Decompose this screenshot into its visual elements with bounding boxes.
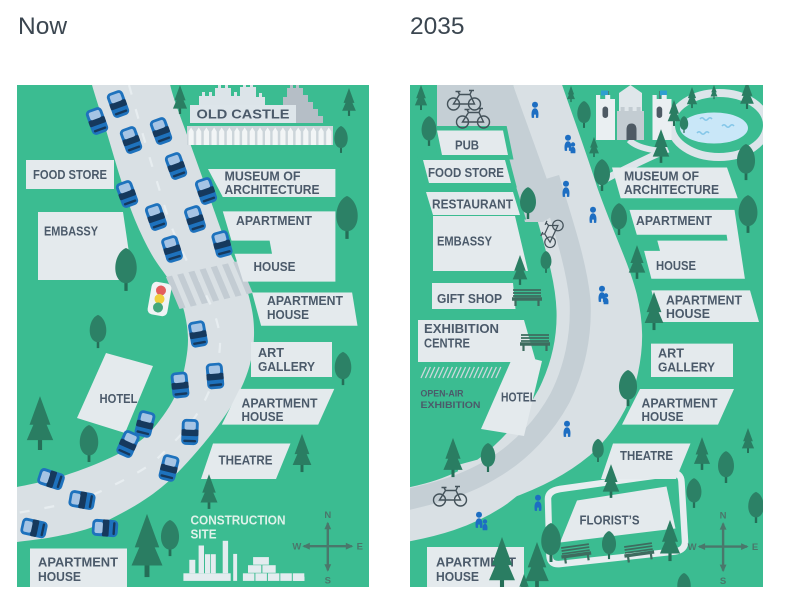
- svg-text:APARTMENT: APARTMENT: [636, 214, 712, 228]
- svg-text:CENTRE: CENTRE: [424, 337, 470, 351]
- svg-text:APARTMENT: APARTMENT: [666, 294, 742, 308]
- svg-text:FLORIST’S: FLORIST’S: [580, 514, 640, 528]
- svg-text:EMBASSY: EMBASSY: [437, 235, 493, 249]
- svg-text:THEATRE: THEATRE: [620, 449, 673, 463]
- svg-text:RESTAURANT: RESTAURANT: [432, 198, 513, 212]
- svg-text:APARTMENT: APARTMENT: [236, 214, 312, 228]
- svg-text:HOUSE: HOUSE: [656, 259, 696, 273]
- svg-text:EXHIBITION: EXHIBITION: [424, 322, 499, 336]
- svg-text:HOUSE: HOUSE: [38, 570, 81, 584]
- svg-text:FOOD STORE: FOOD STORE: [33, 168, 107, 182]
- svg-text:GALLERY: GALLERY: [258, 360, 316, 374]
- svg-text:HOUSE: HOUSE: [666, 307, 710, 321]
- svg-text:MUSEUM OF: MUSEUM OF: [624, 170, 699, 184]
- svg-text:EXHIBITION: EXHIBITION: [421, 400, 481, 411]
- svg-text:ARCHITECTURE: ARCHITECTURE: [225, 183, 320, 197]
- svg-text:GIFT SHOP: GIFT SHOP: [437, 292, 502, 306]
- svg-text:ART: ART: [658, 347, 684, 361]
- svg-text:HOUSE: HOUSE: [642, 410, 684, 424]
- svg-text:FOOD STORE: FOOD STORE: [428, 166, 504, 180]
- svg-text:CONSTRUCTION: CONSTRUCTION: [191, 514, 286, 528]
- svg-text:APARTMENT: APARTMENT: [642, 397, 718, 411]
- svg-text:APARTMENT: APARTMENT: [267, 294, 343, 308]
- svg-text:HOUSE: HOUSE: [254, 260, 296, 274]
- svg-text:EMBASSY: EMBASSY: [44, 225, 99, 239]
- svg-text:PUB: PUB: [455, 139, 479, 153]
- svg-text:HOUSE: HOUSE: [242, 410, 284, 424]
- svg-text:HOUSE: HOUSE: [267, 308, 309, 322]
- svg-text:THEATRE: THEATRE: [219, 454, 273, 468]
- svg-text:MUSEUM OF: MUSEUM OF: [225, 170, 301, 184]
- svg-text:GALLERY: GALLERY: [658, 361, 716, 375]
- svg-text:APARTMENT: APARTMENT: [38, 556, 118, 570]
- svg-text:APARTMENT: APARTMENT: [242, 397, 318, 411]
- svg-text:ART: ART: [258, 346, 284, 360]
- svg-text:HOTEL: HOTEL: [501, 391, 536, 405]
- svg-text:HOTEL: HOTEL: [100, 392, 138, 406]
- svg-text:ARCHITECTURE: ARCHITECTURE: [624, 183, 719, 197]
- svg-text:HOUSE: HOUSE: [436, 570, 479, 584]
- svg-text:SITE: SITE: [191, 528, 217, 542]
- svg-text:OPEN-AIR: OPEN-AIR: [421, 389, 464, 400]
- svg-text:OLD CASTLE: OLD CASTLE: [197, 108, 290, 122]
